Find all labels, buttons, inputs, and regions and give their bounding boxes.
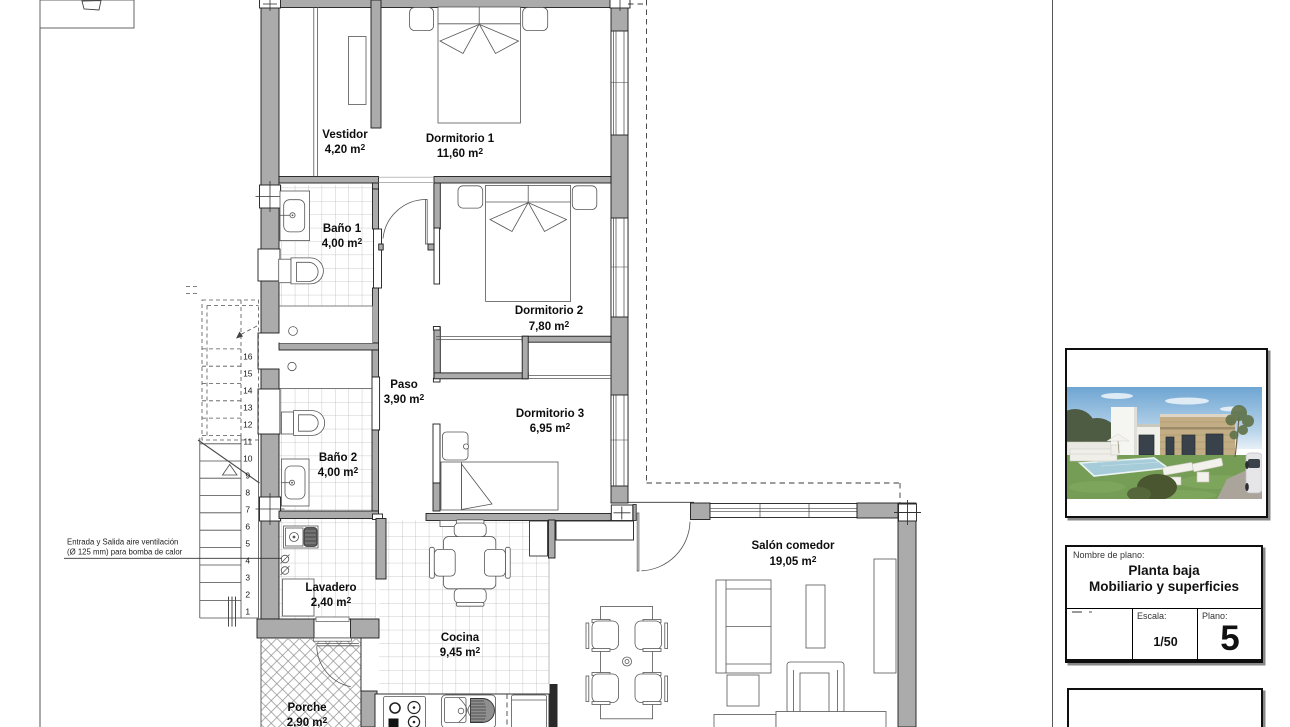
svg-text:4,00 m2: 4,00 m2 (318, 465, 359, 479)
svg-text:4,20 m2: 4,20 m2 (325, 142, 366, 156)
svg-text:(Ø 125 mm) para bomba de calor: (Ø 125 mm) para bomba de calor (67, 548, 183, 557)
svg-text:4,00 m2: 4,00 m2 (322, 236, 363, 250)
svg-text:6,95 m2: 6,95 m2 (530, 421, 571, 435)
svg-text:3: 3 (245, 572, 250, 582)
svg-text:9,45 m2: 9,45 m2 (440, 645, 481, 659)
svg-text:9: 9 (245, 470, 250, 480)
svg-text:15: 15 (243, 368, 253, 378)
svg-text:19,05 m2: 19,05 m2 (770, 554, 817, 568)
svg-text:2,40 m2: 2,40 m2 (311, 595, 352, 609)
svg-text:5: 5 (245, 538, 250, 548)
svg-text:Dormitorio 3: Dormitorio 3 (516, 408, 584, 420)
svg-text:16: 16 (243, 351, 253, 361)
svg-text:4: 4 (245, 555, 250, 565)
svg-text:7: 7 (245, 504, 250, 514)
svg-text:Vestidor: Vestidor (322, 129, 368, 141)
svg-text:8: 8 (245, 487, 250, 497)
svg-text:Dormitorio 1: Dormitorio 1 (426, 133, 495, 145)
svg-text:3,90 m2: 3,90 m2 (384, 392, 425, 406)
svg-text:10: 10 (243, 453, 253, 463)
svg-text:11,60 m2: 11,60 m2 (437, 146, 484, 160)
svg-text:Baño 2: Baño 2 (319, 452, 357, 464)
svg-text:Lavadero: Lavadero (305, 582, 356, 594)
svg-text:2: 2 (245, 589, 250, 599)
svg-text:Salón comedor: Salón comedor (751, 540, 835, 552)
svg-text:12: 12 (243, 419, 253, 429)
svg-text:Porche: Porche (288, 702, 327, 714)
svg-text:Entrada y Salida aire ventilac: Entrada y Salida aire ventilación (67, 538, 178, 547)
svg-text:2,90 m2: 2,90 m2 (287, 715, 328, 727)
svg-text:7,80 m2: 7,80 m2 (529, 319, 570, 333)
svg-text:6: 6 (245, 521, 250, 531)
svg-text:1: 1 (245, 606, 250, 616)
svg-text:11: 11 (243, 436, 252, 446)
svg-text:Cocina: Cocina (441, 632, 480, 644)
svg-text:13: 13 (243, 402, 253, 412)
svg-text:Baño 1: Baño 1 (323, 223, 362, 235)
svg-text:Dormitorio 2: Dormitorio 2 (515, 305, 583, 317)
svg-text:Paso: Paso (390, 379, 418, 391)
svg-text:14: 14 (243, 385, 253, 395)
